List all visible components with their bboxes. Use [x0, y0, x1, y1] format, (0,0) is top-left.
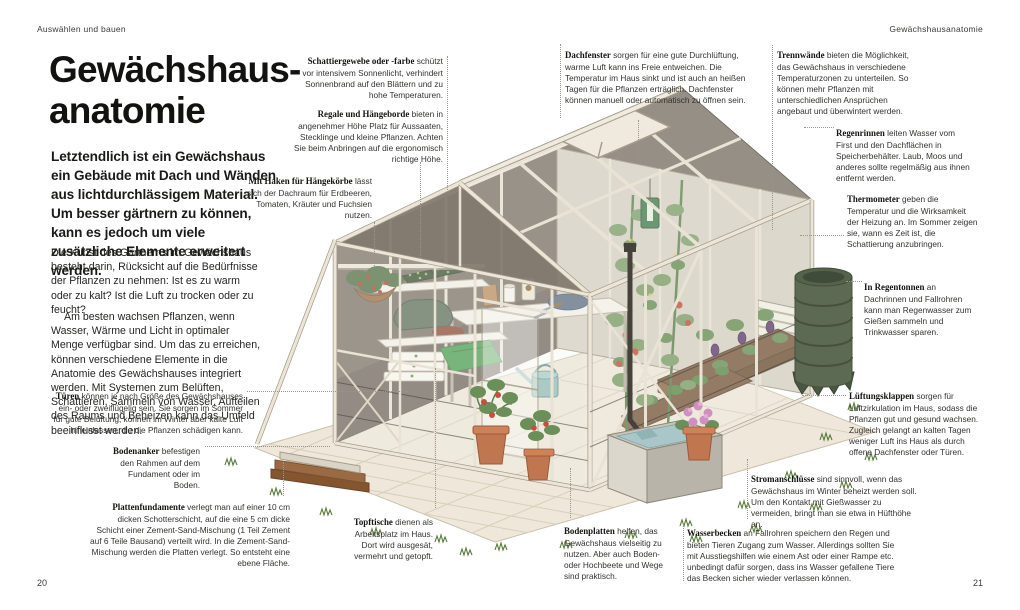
leader-line [683, 523, 684, 581]
label-dachfenster: Dachfenster sorgen für eine gute Durchlü… [565, 50, 753, 106]
leader-line [802, 395, 846, 396]
label-regenrinnen: Regenrinnen leiten Wasser vom First und … [836, 128, 970, 184]
label-stromanschluesse: Stromanschlüsse sind sinnvoll, wenn das … [751, 474, 923, 530]
rain-barrel [793, 268, 854, 396]
label-schattiergewebe: Schattiergewebe oder -farbe schützt vor … [301, 56, 443, 101]
book-spread-page: { "page": { "section_header": "Auswählen… [0, 0, 1020, 610]
label-trennwaende: Trennwände bieten die Möglichkeit, das G… [777, 50, 913, 117]
label-topftische: Topftische dienen als Arbeitsplatz im Ha… [337, 517, 433, 562]
label-haken: Mit Haken für Hängekörbe lässt sich der … [242, 176, 372, 221]
leader-line [205, 446, 330, 447]
label-bodenplatten: Bodenplatten helfen, das Gewächshaus vie… [564, 526, 666, 582]
label-regentonnen: In Regentonnen an Dachrinnen und Fallroh… [864, 282, 976, 338]
leader-line [804, 127, 834, 128]
label-thermometer: Thermometer geben die Temperatur und die… [847, 194, 979, 250]
leader-line [435, 368, 436, 508]
label-wasserbecken: Wasserbecken an Fallrohren speichern den… [687, 528, 899, 584]
leader-line [772, 45, 773, 230]
label-regale: Regale und Hängeborde bieten in angenehm… [293, 109, 443, 165]
leader-line [447, 56, 448, 190]
leader-line [638, 120, 639, 158]
page-number-right: 21 [973, 578, 983, 588]
leader-line [846, 281, 862, 282]
leader-line [570, 468, 571, 518]
leader-line [374, 222, 375, 266]
leader-line [747, 459, 748, 519]
label-tueren: Türen können je nach Größe des Gewächsha… [53, 391, 243, 436]
leader-line [283, 462, 284, 496]
label-lueftungsklappen: Lüftungsklappen sorgen für Luftzirkulati… [849, 391, 981, 458]
leader-line [420, 162, 421, 258]
leader-line [800, 235, 844, 236]
running-head-right: Gewächshausanatomie [889, 24, 983, 34]
label-plattenfundamente: Plattenfundamente verlegt man auf einer … [90, 502, 290, 569]
leader-line [560, 44, 561, 118]
page-number-left: 20 [37, 578, 47, 588]
label-bodenanker: Bodenanker befestigen den Rahmen auf dem… [108, 446, 200, 491]
leader-line [247, 391, 408, 392]
running-head-left: Auswählen und bauen [37, 24, 126, 34]
